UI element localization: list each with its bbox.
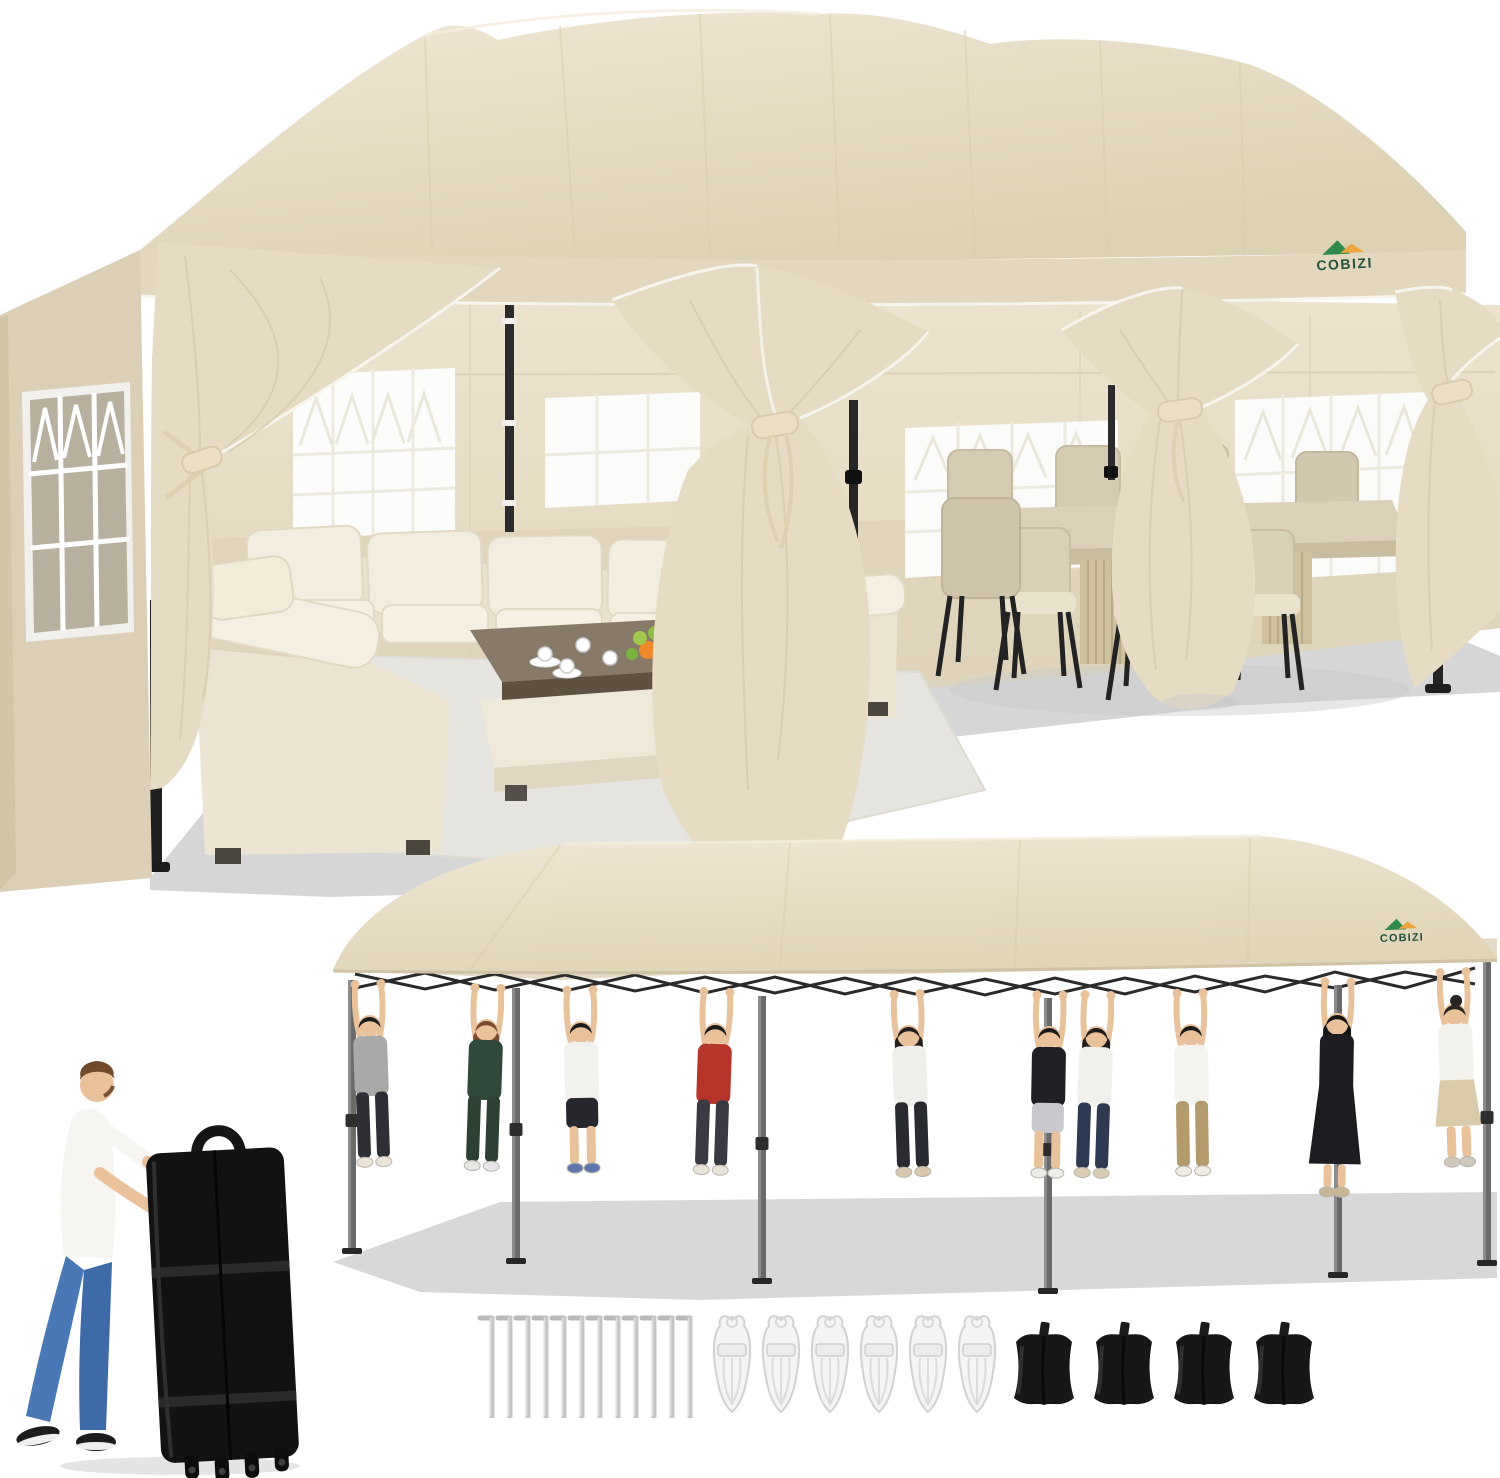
sandbags bbox=[1014, 1322, 1314, 1405]
stake bbox=[642, 1316, 654, 1418]
brand-logo-text: COBIZI bbox=[1380, 931, 1424, 945]
hanging-person bbox=[693, 987, 735, 1176]
rope bbox=[861, 1316, 897, 1412]
sidewall-window bbox=[22, 382, 134, 642]
stake bbox=[660, 1316, 672, 1418]
stake bbox=[678, 1316, 690, 1418]
accessories-row bbox=[0, 1280, 1500, 1478]
ground-stakes bbox=[480, 1316, 690, 1418]
hanging-person bbox=[889, 989, 931, 1178]
stake bbox=[516, 1316, 528, 1418]
left-sidewall bbox=[0, 250, 152, 892]
sandbag bbox=[1254, 1322, 1314, 1405]
canopy-furnished-scene: COBIZI bbox=[0, 0, 1500, 905]
rope bbox=[812, 1316, 848, 1412]
sandbag bbox=[1174, 1322, 1234, 1405]
sandbag bbox=[1014, 1322, 1074, 1405]
stake bbox=[570, 1316, 582, 1418]
rope bbox=[714, 1316, 750, 1412]
hanging-person bbox=[464, 983, 506, 1172]
guy-ropes bbox=[714, 1316, 995, 1412]
stake bbox=[498, 1316, 510, 1418]
stake bbox=[606, 1316, 618, 1418]
hanging-people bbox=[350, 967, 1482, 1198]
sandbag bbox=[1094, 1322, 1154, 1405]
stake bbox=[588, 1316, 600, 1418]
rope bbox=[959, 1316, 995, 1412]
rope bbox=[910, 1316, 946, 1412]
stake bbox=[480, 1316, 492, 1418]
brand-logo-text: COBIZI bbox=[1316, 254, 1373, 273]
stake bbox=[534, 1316, 546, 1418]
hanging-person bbox=[562, 985, 600, 1173]
rope bbox=[763, 1316, 799, 1412]
product-image: COBIZI bbox=[0, 0, 1500, 1478]
hanging-person bbox=[1074, 990, 1116, 1179]
canopy-roof: COBIZI bbox=[333, 836, 1497, 974]
back-window-center bbox=[545, 392, 700, 508]
stake bbox=[624, 1316, 636, 1418]
stake bbox=[552, 1316, 564, 1418]
hanging-person bbox=[350, 979, 392, 1168]
hanging-person bbox=[1430, 967, 1483, 1168]
hanging-person bbox=[1172, 988, 1210, 1176]
